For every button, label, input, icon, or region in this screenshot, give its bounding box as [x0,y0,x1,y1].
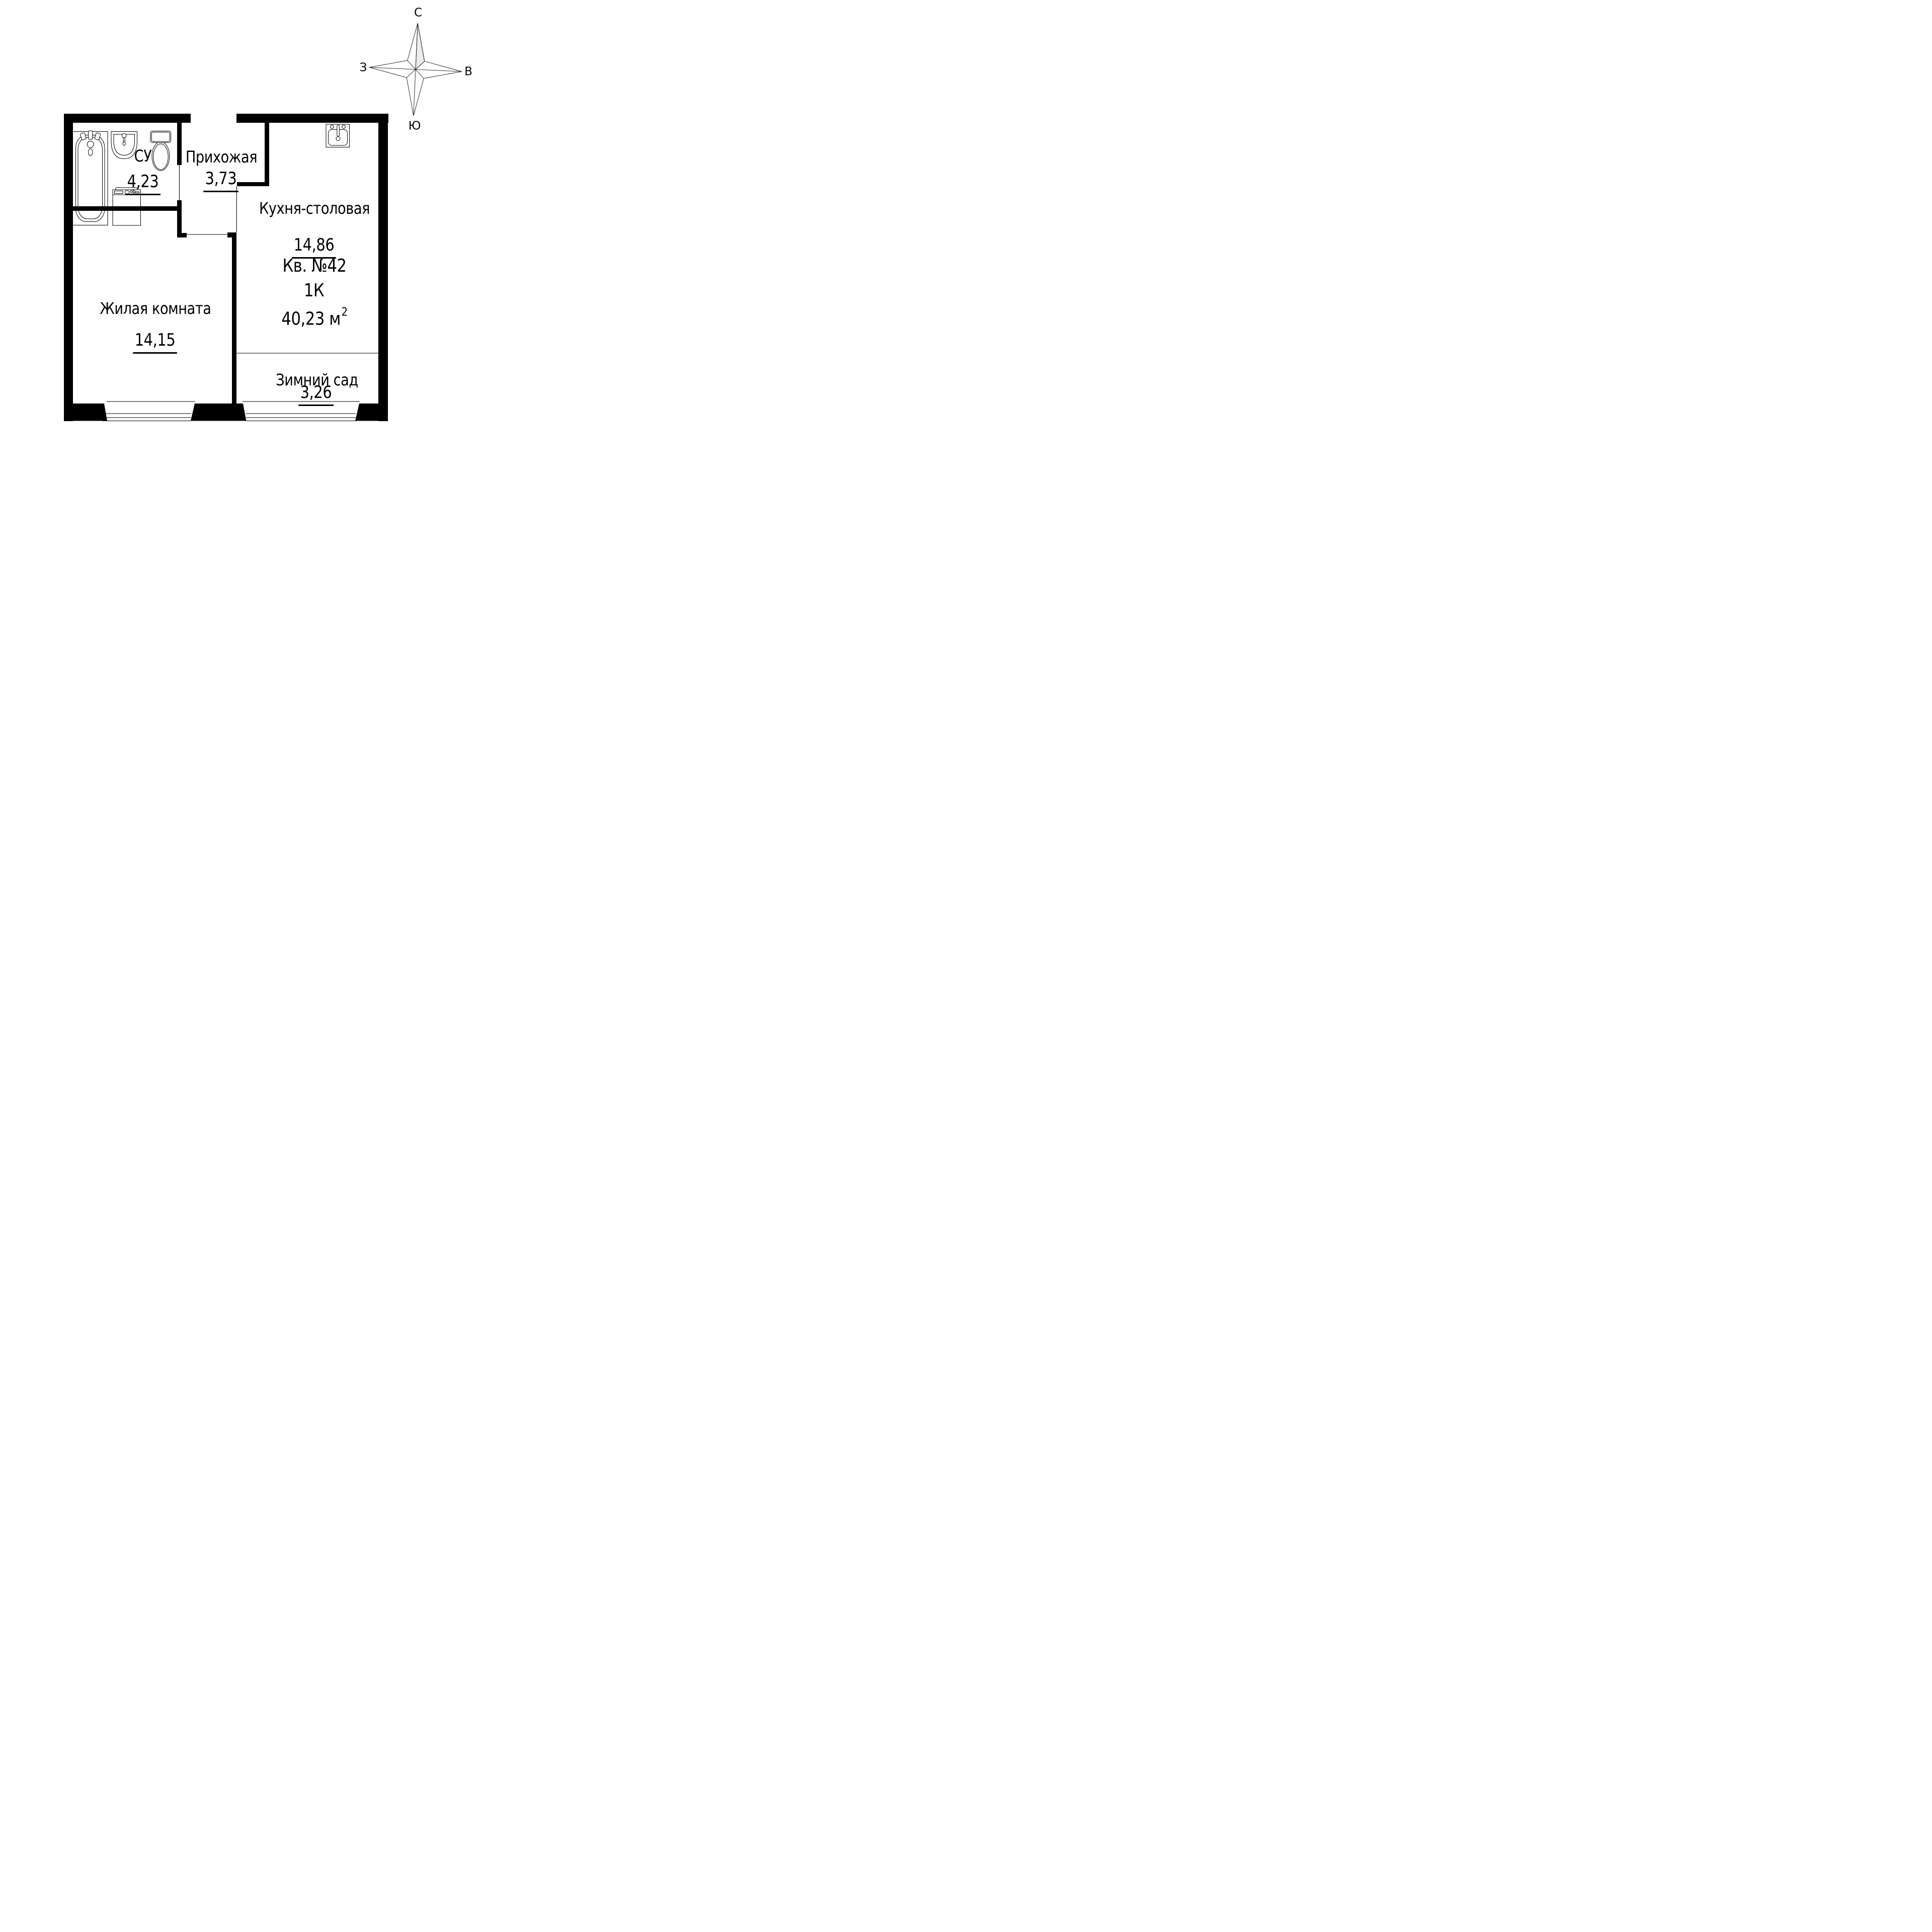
kitchen-label: Кухня-столовая [259,200,370,216]
toilet-icon [150,131,171,171]
wall-outer-top-left [64,114,191,123]
wall-bathroom-right-lower [177,200,182,237]
wall-living-kitchen-partition [232,237,236,404]
wall-hallway-door-jamb [182,233,187,237]
wall-outer-top-right [236,114,388,123]
bottom-wall-middle-pier [191,404,247,421]
openings [180,165,379,353]
wall-bathroom-right-upper [177,123,182,165]
wall-kitchen-stub [237,182,269,186]
compass-south-label: Ю [409,121,421,132]
winter-garden-area: 3,26 [298,384,333,406]
window-living-room [103,401,195,421]
kitchen-sink-icon [326,124,350,147]
compass-north-label: С [414,8,422,19]
wall-bathroom-bottom [73,206,177,211]
bathroom-area: 4,23 [125,173,160,195]
apartment-area-unit: м [329,309,341,330]
compass-east-label: В [464,66,472,78]
hallway-label: Прихожая [186,149,257,165]
bottom-wall [64,404,388,421]
living-room-label: Жилая комната [100,300,211,316]
wall-outer-left [64,114,73,421]
apartment-number: Кв. №42 [282,257,346,275]
compass-west-label: З [360,62,367,74]
bathroom-label: СУ [134,148,152,164]
apartment-area-sup: 2 [342,306,348,319]
apartment-type: 1К [304,282,324,300]
hallway-area: 3,73 [203,170,238,192]
washbasin-icon [111,132,137,159]
apartment-area: 40,23 м2 [281,307,347,329]
bathtub-icon [73,131,108,225]
living-room-area: 14,15 [133,332,177,354]
wall-outer-right [378,114,388,421]
apartment-area-value: 40,23 [281,309,324,330]
compass-rose-icon [367,21,464,118]
wall-kitchen-left [265,123,270,186]
floor-plan: С Ю З В СУ 4,23 Прихожая 3,73 Кухня-стол… [0,0,483,483]
